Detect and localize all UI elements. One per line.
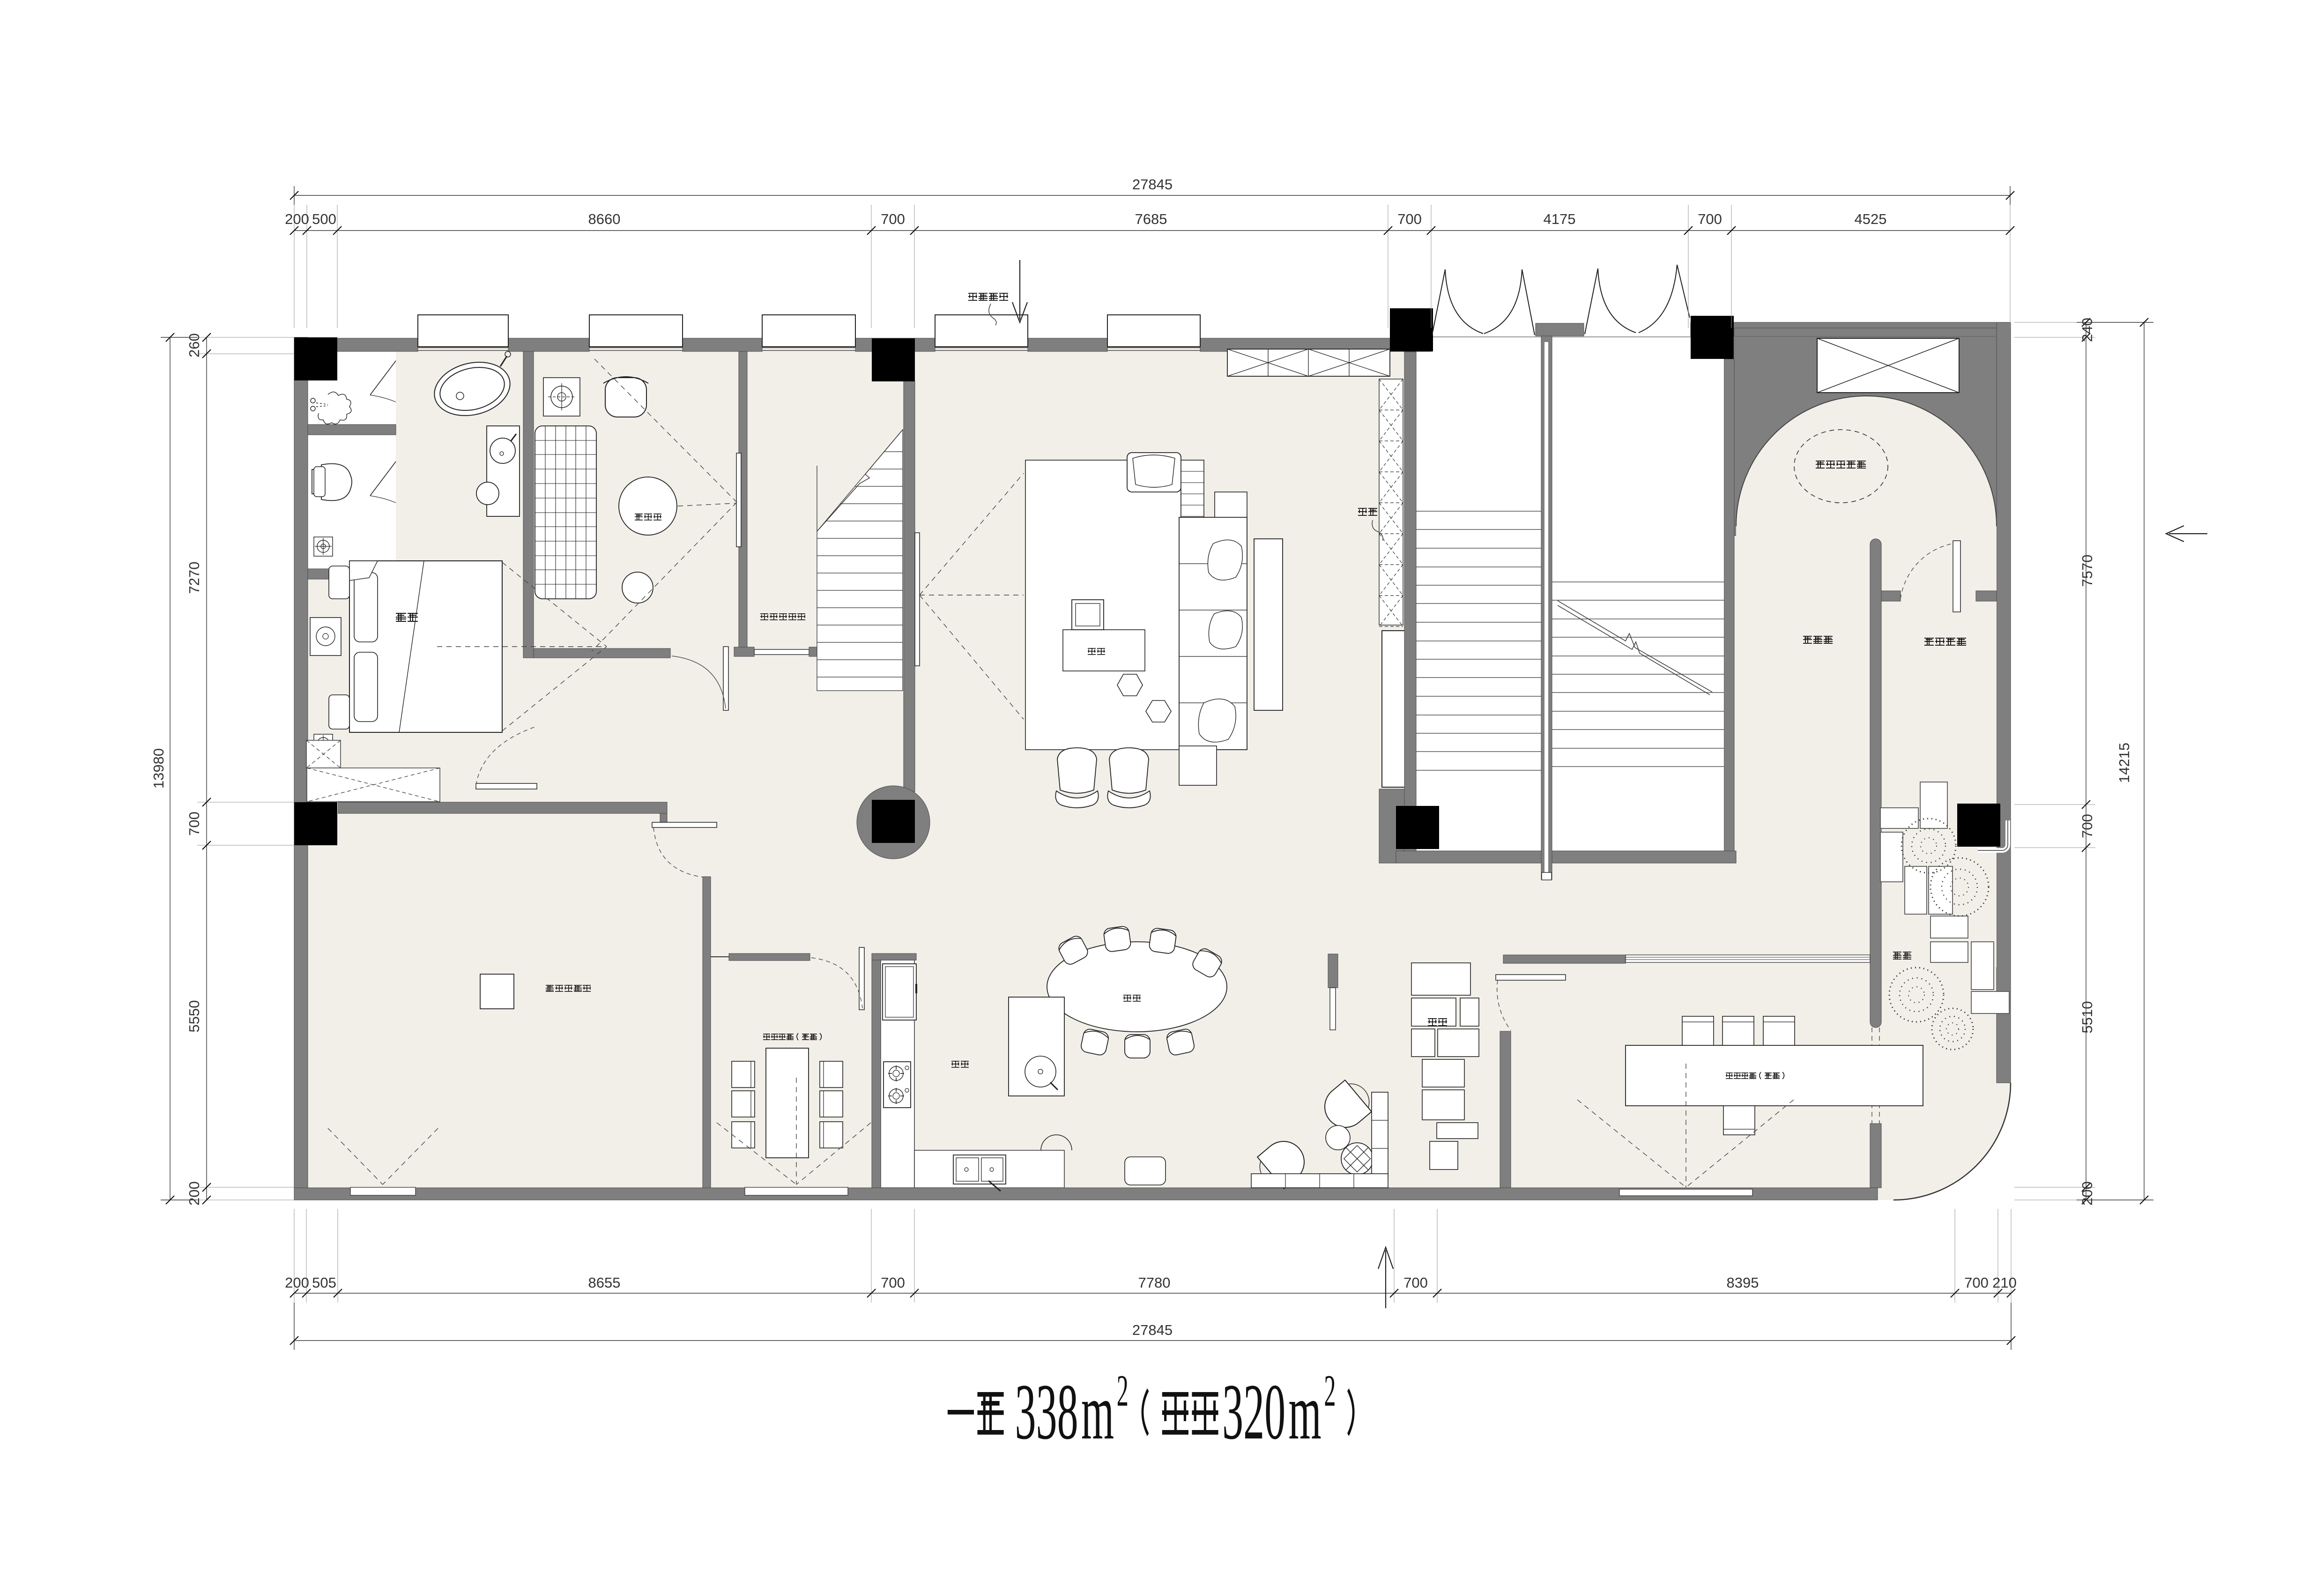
svg-text:240: 240: [2079, 318, 2095, 342]
svg-text:7270: 7270: [186, 562, 202, 594]
svg-text:4525: 4525: [1855, 211, 1887, 227]
svg-text:700: 700: [1698, 211, 1722, 227]
svg-text:700: 700: [881, 211, 905, 227]
svg-text:27845: 27845: [1132, 176, 1173, 193]
svg-text:27845: 27845: [1132, 1322, 1173, 1338]
svg-text:m: m: [1289, 1368, 1322, 1456]
svg-text:260: 260: [186, 333, 202, 358]
svg-text:200: 200: [2079, 1181, 2095, 1206]
svg-text:200: 200: [186, 1181, 202, 1206]
svg-text:338: 338: [1015, 1368, 1078, 1456]
svg-text:5550: 5550: [186, 1000, 202, 1033]
svg-text:8395: 8395: [1727, 1274, 1759, 1291]
svg-text:700: 700: [1397, 211, 1422, 227]
svg-text:210: 210: [1992, 1274, 2017, 1291]
svg-text:7685: 7685: [1135, 211, 1167, 227]
svg-text:4175: 4175: [1544, 211, 1576, 227]
svg-text:2: 2: [1117, 1366, 1129, 1416]
svg-text:320: 320: [1222, 1368, 1285, 1456]
svg-text:500: 500: [312, 211, 336, 227]
svg-text:2: 2: [1324, 1366, 1336, 1416]
svg-text:8655: 8655: [588, 1274, 621, 1291]
svg-text:14215: 14215: [2116, 743, 2132, 783]
svg-text:700: 700: [186, 812, 202, 836]
svg-text:13980: 13980: [150, 748, 167, 789]
svg-text:7780: 7780: [1138, 1274, 1171, 1291]
svg-text:200: 200: [285, 211, 309, 227]
svg-text:700: 700: [2079, 814, 2095, 838]
svg-text:700: 700: [1964, 1274, 1989, 1291]
svg-text:m: m: [1081, 1368, 1114, 1456]
svg-text:200: 200: [285, 1274, 309, 1291]
svg-text:5510: 5510: [2079, 1001, 2095, 1034]
svg-text:700: 700: [1403, 1274, 1428, 1291]
svg-text:7570: 7570: [2079, 555, 2095, 587]
svg-text:8660: 8660: [588, 211, 621, 227]
svg-text:505: 505: [312, 1274, 336, 1291]
svg-text:700: 700: [881, 1274, 905, 1291]
